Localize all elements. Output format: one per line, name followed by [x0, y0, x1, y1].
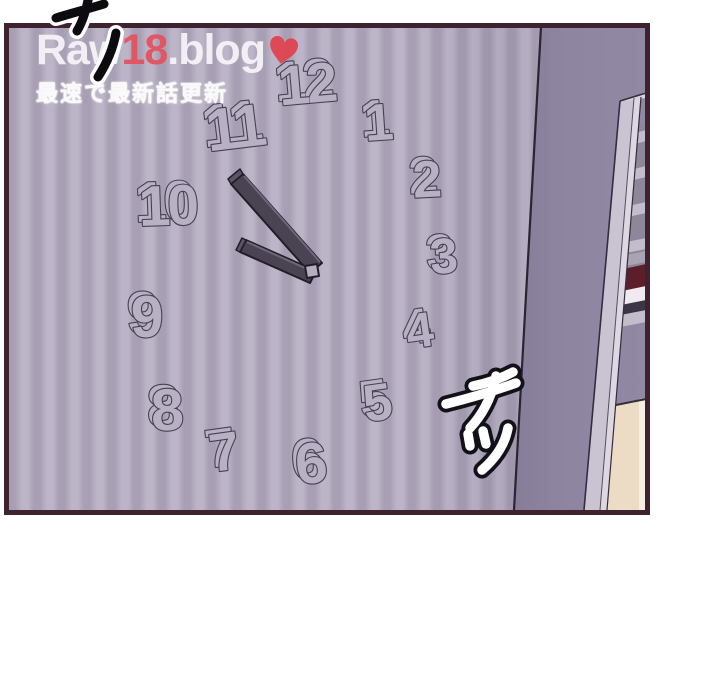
heart-icon: [265, 33, 302, 68]
brand-number: 18: [121, 28, 167, 73]
watermark: Raw18.blog 最速で最新話更新: [36, 28, 299, 108]
brand-suffix: .blog: [167, 28, 265, 73]
brand-prefix: Raw: [36, 28, 121, 73]
comic-page: 12 12 1 1 2 2 3 3 4 4 5 5 6 6 7 7 8 8 9: [0, 0, 720, 700]
watermark-brand: Raw18.blog: [36, 28, 299, 73]
watermark-tagline: 最速で最新話更新: [36, 76, 299, 108]
